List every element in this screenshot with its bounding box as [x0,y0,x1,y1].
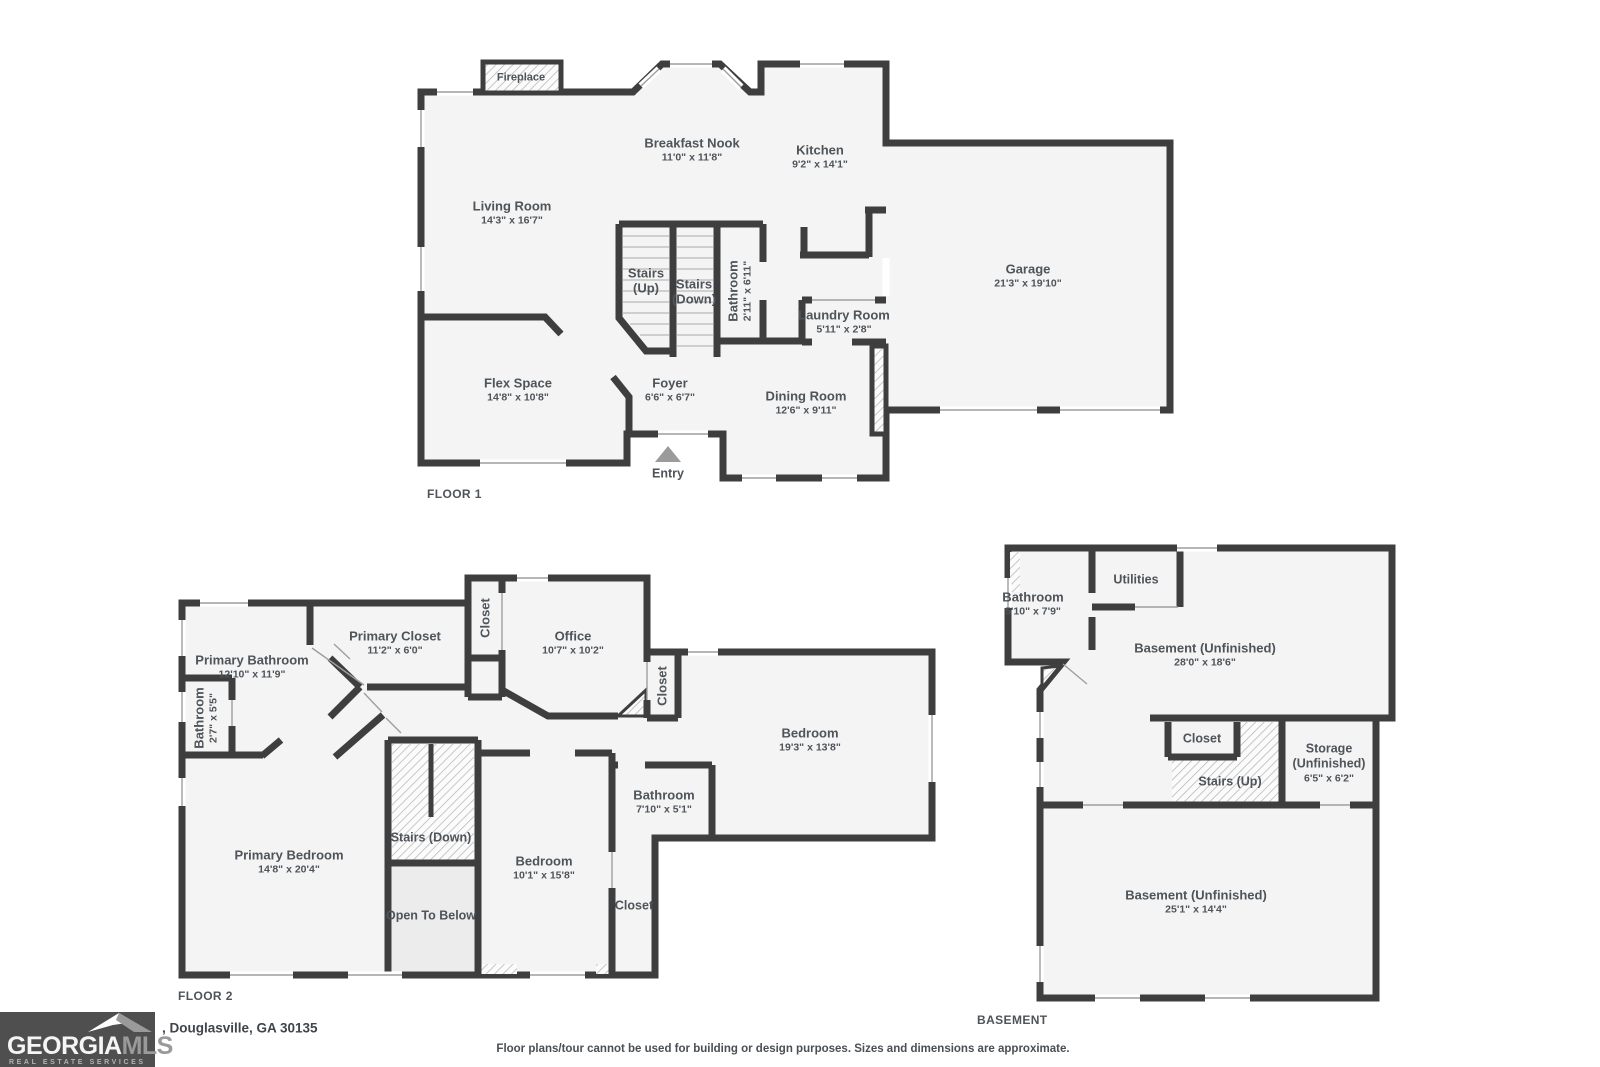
room-label-basement-closet: Closet [1183,732,1221,747]
logo-tagline: REAL ESTATE SERVICES [9,1059,146,1066]
room-label-closet-bottom: Closet [615,899,653,914]
basement-title: BASEMENT [977,1013,1048,1027]
room-label-primary-closet: Primary Closet 11'2" x 6'0" [349,629,441,658]
room-label-stairs-down: Stairs (Down) [672,277,716,308]
room-label-stairs-down-f2: Stairs (Down) [391,831,472,846]
room-label-kitchen: Kitchen 9'2" x 14'1" [792,143,848,172]
room-label-basement-upper: Basement (Unfinished) 28'0" x 18'6" [1134,641,1276,670]
floor2-title: FLOOR 2 [178,989,233,1003]
room-label-flex-space: Flex Space 14'8" x 10'8" [484,376,552,405]
room-label-utilities: Utilities [1113,573,1158,588]
entry-arrow-icon [655,446,681,462]
floorplan-page: Fireplace Breakfast Nook 11'0" x 11'8" K… [0,0,1600,1067]
room-label-primary-bedroom: Primary Bedroom 14'8" x 20'4" [234,848,343,877]
floor1-title: FLOOR 1 [427,487,482,501]
georgia-mls-logo: GEORGIAMLS REAL ESTATE SERVICES [0,1012,155,1067]
room-label-bedroom-small: Bedroom 10'1" x 15'8" [513,854,575,883]
room-label-stairs-up: Stairs (Up) [628,266,664,297]
room-label-open-to-below: Open To Below [386,909,476,924]
room-label-foyer: Foyer 6'6" x 6'7" [645,376,695,405]
room-label-basement-bathroom: Bathroom 5'10" x 7'9" [1002,590,1063,619]
room-label-dining-room: Dining Room 12'6" x 9'11" [766,389,847,418]
room-label-breakfast-nook: Breakfast Nook 11'0" x 11'8" [644,136,739,165]
room-label-laundry-room: Laundry Room 5'11" x 2'8" [798,308,890,337]
room-label-bathroom-f1: Bathroom 2'11" x 6'11" [726,260,755,321]
room-label-basement-lower: Basement (Unfinished) 25'1" x 14'4" [1125,888,1267,917]
property-address: , Douglasville, GA 30135 [162,1021,318,1036]
logo-brand: GEORGIAMLS [7,1034,173,1059]
room-label-office: Office 10'7" x 10'2" [542,629,604,658]
room-label-fireplace: Fireplace [497,72,545,85]
room-label-closet-mid: Closet [654,666,669,706]
room-label-bathroom-small: Bathroom 2'7" x 5'5" [192,687,221,748]
room-label-stairs-up-basement: Stairs (Up) [1198,775,1261,790]
room-label-bathroom-hall: Bathroom 7'10" x 5'1" [633,788,694,817]
room-label-closet-left: Closet [477,598,492,638]
room-label-bedroom-large: Bedroom 19'3" x 13'8" [779,726,841,755]
disclaimer-text: Floor plans/tour cannot be used for buil… [496,1043,1069,1055]
room-label-storage: Storage (Unfinished) 6'5" x 6'2" [1293,742,1366,785]
room-label-living-room: Living Room 14'3" x 16'7" [473,199,552,228]
entry-label: Entry [652,467,684,482]
room-label-garage: Garage 21'3" x 19'10" [994,262,1062,291]
room-label-primary-bathroom: Primary Bathroom 12'10" x 11'9" [195,653,308,682]
